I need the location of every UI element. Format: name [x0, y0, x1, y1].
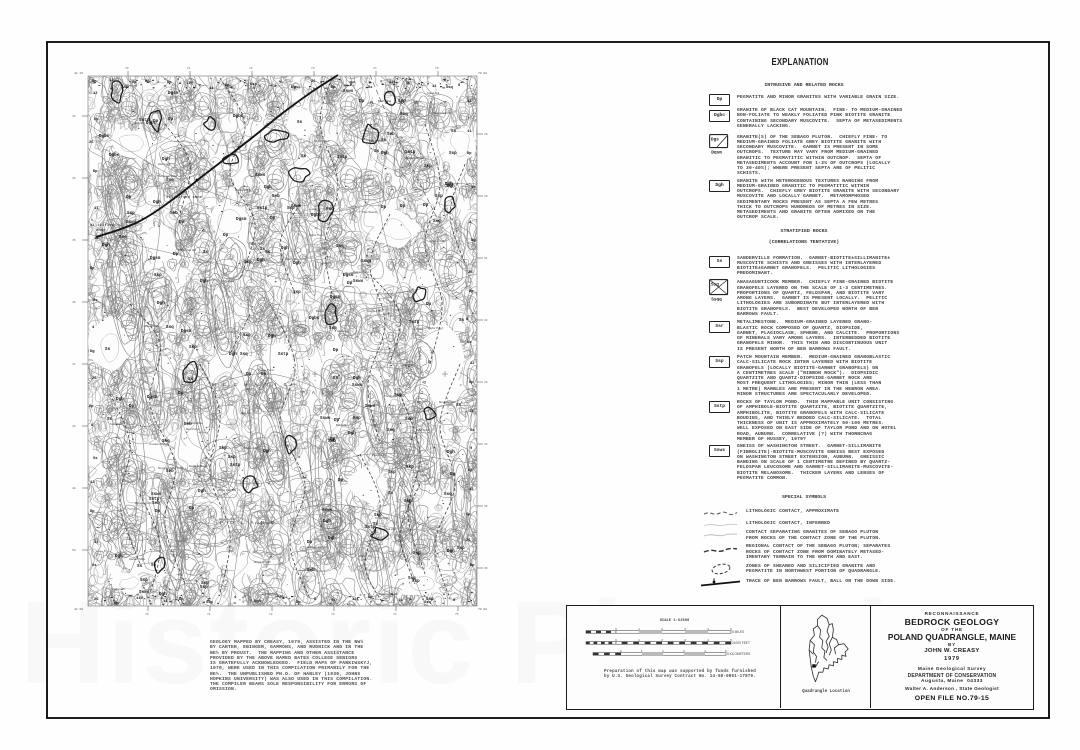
svg-text:26: 26 [311, 80, 316, 84]
svg-text:1: 1 [638, 638, 640, 642]
svg-text:Dp: Dp [331, 86, 336, 90]
svg-text:Dp: Dp [246, 372, 252, 377]
svg-text:Dp: Dp [155, 509, 161, 514]
svg-text:Dp: Dp [469, 290, 474, 294]
svg-text:Megquier Hill: Megquier Hill [310, 545, 327, 549]
svg-text:Dgh: Dgh [348, 431, 356, 436]
svg-text:Dgh: Dgh [447, 549, 455, 554]
svg-text:11: 11 [467, 130, 472, 134]
svg-text:Dgh: Dgh [263, 449, 271, 454]
svg-text:Bald Hill: Bald Hill [336, 423, 347, 427]
svg-text:Dp: Dp [381, 205, 387, 210]
svg-text:Dgh: Dgh [254, 599, 262, 604]
svg-text:Johnson Hill: Johnson Hill [429, 239, 445, 243]
svg-text:Ssp: Ssp [457, 546, 465, 551]
svg-text:Ss: Ss [459, 318, 465, 323]
svg-text:Dgsm: Dgsm [181, 329, 192, 334]
svg-text:Dp: Dp [468, 469, 473, 473]
svg-text:Dp: Dp [261, 372, 267, 377]
svg-text:75: 75 [435, 67, 439, 70]
svg-text:Dp: Dp [347, 281, 353, 286]
svg-text:Tripp Lake: Tripp Lake [221, 279, 235, 283]
svg-text:Megquier Hill: Megquier Hill [439, 400, 456, 404]
svg-text:Ss: Ss [374, 149, 380, 154]
svg-text:Dp: Dp [469, 381, 474, 385]
svg-text:Dgh: Dgh [447, 184, 455, 189]
svg-text:74: 74 [373, 67, 377, 70]
svg-text:Ss: Ss [93, 457, 98, 461]
svg-text:Meadow Brook: Meadow Brook [405, 156, 424, 160]
svg-text:Dgsm: Dgsm [236, 217, 247, 222]
svg-text:Ss: Ss [388, 491, 394, 496]
svg-text:49: 49 [72, 487, 76, 490]
svg-text:Dgh: Dgh [257, 258, 265, 263]
svg-text:Hardscrabble: Hardscrabble [186, 421, 203, 425]
svg-text:Ss: Ss [301, 154, 307, 159]
svg-text:Dgh: Dgh [200, 279, 208, 284]
svg-text:Ssp: Ssp [201, 581, 209, 586]
svg-text:Ss: Ss [151, 563, 157, 568]
svg-text:Pigeon Hill: Pigeon Hill [372, 453, 386, 457]
svg-text:Range Pond: Range Pond [316, 309, 332, 313]
svg-text:50: 50 [72, 549, 76, 552]
svg-text:Skp: Skp [189, 345, 197, 350]
svg-text:Dp: Dp [450, 472, 456, 477]
svg-text:Ssp: Ssp [243, 333, 251, 338]
svg-text:3: 3 [684, 638, 686, 642]
svg-text:P O L A N D: P O L A N D [220, 520, 278, 525]
svg-text:Ssws: Ssws [126, 220, 137, 225]
svg-text:30: 30 [484, 195, 488, 198]
svg-text:2: 2 [661, 627, 663, 631]
svg-text:Taylor Pond: Taylor Pond [428, 326, 443, 330]
svg-text:21000 FEET: 21000 FEET [732, 641, 750, 645]
svg-text:Skp: Skp [406, 465, 414, 470]
svg-text:Dp: Dp [129, 404, 135, 409]
svg-text:12: 12 [469, 488, 474, 492]
svg-text:Dgh: Dgh [447, 450, 455, 455]
svg-text:72: 72 [249, 67, 253, 70]
svg-text:Dp: Dp [400, 204, 406, 209]
svg-text:Ssp: Ssp [449, 151, 457, 156]
svg-text:Ss: Ss [467, 341, 472, 345]
svg-text:Ss: Ss [297, 120, 303, 125]
svg-text:Ss: Ss [331, 599, 336, 603]
svg-text:74: 74 [393, 613, 397, 616]
svg-text:Dp: Dp [406, 82, 411, 86]
svg-text:Sstp: Sstp [257, 206, 268, 211]
svg-text:Ssq: Ssq [166, 178, 174, 183]
svg-text:Dgbc: Dgbc [309, 316, 320, 321]
svg-text:0: 0 [615, 638, 617, 642]
svg-text:Ss: Ss [188, 377, 194, 382]
svg-text:26: 26 [92, 377, 97, 381]
svg-text:Hackett Mills: Hackett Mills [235, 188, 251, 192]
svg-text:Skp: Skp [404, 499, 412, 504]
svg-text:Dp: Dp [168, 117, 174, 122]
svg-text:Seb: Seb [170, 211, 178, 216]
svg-text:Dgsm: Dgsm [711, 150, 722, 154]
svg-text:Ssp: Ssp [405, 417, 413, 422]
svg-text:Ssws: Ssws [291, 204, 302, 209]
svg-text:Ssws: Ssws [322, 508, 333, 513]
svg-text:Taylor Pond: Taylor Pond [375, 516, 390, 520]
svg-text:70: 70 [145, 613, 149, 616]
svg-text:Ss: Ss [456, 403, 462, 408]
svg-text:Dgh: Dgh [264, 185, 272, 190]
svg-text:Ss: Ss [92, 564, 97, 568]
svg-text:73: 73 [331, 613, 335, 616]
svg-text:48: 48 [72, 425, 76, 428]
svg-text:Mud Pond: Mud Pond [186, 427, 199, 431]
svg-text:11: 11 [209, 87, 214, 91]
svg-text:Dgh: Dgh [153, 200, 161, 205]
svg-text:Sstp: Sstp [337, 155, 348, 160]
svg-text:26: 26 [89, 141, 94, 145]
svg-text:Ssq: Ssq [400, 112, 408, 117]
svg-text:Skp: Skp [424, 164, 432, 169]
svg-text:Sstp: Sstp [405, 150, 416, 155]
svg-text:Dgbc: Dgbc [99, 134, 110, 139]
svg-text:Dgh: Dgh [323, 519, 331, 524]
svg-text:Ssws: Ssws [151, 492, 162, 497]
svg-text:12: 12 [470, 362, 475, 366]
svg-text:31: 31 [484, 257, 488, 260]
svg-text:Hackett Mills: Hackett Mills [262, 592, 278, 596]
svg-text:Sp: Sp [94, 118, 99, 122]
svg-text:Dgh: Dgh [281, 246, 289, 251]
svg-text:Ssws: Ssws [255, 173, 266, 178]
svg-text:Dgh: Dgh [102, 243, 110, 248]
svg-text:45: 45 [72, 239, 76, 242]
svg-text:Ssp: Ssp [140, 578, 148, 583]
svg-text:Megquier Hill: Megquier Hill [158, 466, 175, 470]
svg-text:11: 11 [432, 85, 437, 89]
svg-text:Dp: Dp [467, 152, 472, 156]
svg-text:Skp: Skp [154, 273, 162, 278]
svg-text:Ss: Ss [471, 186, 476, 190]
svg-text:Seb: Seb [152, 501, 160, 506]
svg-text:Ssws: Ssws [361, 259, 372, 264]
svg-text:Sp: Sp [466, 513, 471, 517]
svg-text:Dp: Dp [114, 602, 119, 606]
svg-text:44 15: 44 15 [74, 72, 83, 75]
svg-text:26: 26 [94, 598, 99, 602]
svg-text:Ss: Ss [137, 564, 143, 569]
svg-text:Dp: Dp [90, 510, 95, 514]
svg-text:Ssq: Ssq [424, 601, 432, 605]
svg-text:34: 34 [484, 443, 488, 446]
svg-text:White Oak Hill: White Oak Hill [218, 488, 236, 492]
svg-text:35: 35 [484, 505, 488, 508]
svg-text:47: 47 [72, 363, 76, 366]
svg-text:Dp: Dp [173, 252, 179, 257]
svg-text:Sstp: Sstp [409, 320, 420, 325]
svg-text:Ss: Ss [105, 347, 111, 352]
svg-text:11: 11 [94, 237, 99, 241]
svg-text:Dgbc: Dgbc [109, 153, 120, 158]
svg-text:Thompson Lake: Thompson Lake [384, 394, 405, 398]
svg-text:Dg: Dg [90, 350, 95, 354]
svg-text:Ss: Ss [368, 86, 373, 90]
svg-text:Dp: Dp [359, 99, 365, 104]
svg-text:44: 44 [72, 177, 76, 180]
svg-text:4: 4 [704, 649, 706, 653]
svg-text:Dp: Dp [90, 267, 95, 271]
svg-text:Ssq: Ssq [444, 492, 452, 497]
svg-text:F A L L S: F A L L S [302, 390, 347, 395]
svg-text:Dgh: Dgh [353, 376, 361, 381]
svg-text:Sstp: Sstp [278, 352, 289, 357]
svg-text:Dp: Dp [93, 170, 98, 174]
svg-text:Ss: Ss [203, 250, 209, 255]
svg-text:Crooked River: Crooked River [149, 442, 167, 446]
svg-text:Dgsm: Dgsm [168, 91, 179, 96]
svg-text:Harris Hill: Harris Hill [158, 162, 170, 166]
svg-text:Taylor Pond: Taylor Pond [314, 139, 329, 143]
svg-text:Taylor Pond: Taylor Pond [309, 233, 324, 237]
svg-text:zone: zone [96, 229, 106, 233]
svg-text:11: 11 [398, 599, 403, 603]
svg-text:Megquier Hill: Megquier Hill [254, 560, 271, 564]
svg-text:Range Pond: Range Pond [353, 270, 369, 274]
svg-text:Ss: Ss [93, 299, 98, 303]
svg-text:Dp: Dp [89, 405, 94, 409]
svg-text:Seb: Seb [387, 132, 395, 137]
svg-text:Dp: Dp [179, 220, 185, 225]
svg-text:Ssq: Ssq [387, 428, 395, 433]
svg-text:Dgh: Dgh [293, 261, 301, 266]
svg-text:3: 3 [684, 627, 686, 631]
svg-text:11: 11 [469, 410, 474, 414]
svg-text:Ssws: Ssws [352, 383, 363, 388]
svg-text:Empire: Empire [414, 327, 423, 331]
svg-text:70 00: 70 00 [478, 72, 487, 75]
svg-text:Dp: Dp [423, 203, 429, 208]
svg-text:Dgsm: Dgsm [147, 395, 158, 400]
svg-text:Pine Woods: Pine Woods [362, 210, 378, 214]
svg-text:33: 33 [484, 381, 488, 384]
svg-text:46: 46 [72, 301, 76, 304]
svg-text:32: 32 [484, 319, 488, 322]
svg-text:11: 11 [163, 600, 168, 604]
svg-text:Ssq: Ssq [446, 86, 454, 90]
svg-text:Dp: Dp [167, 81, 172, 85]
svg-text:Spear Hill: Spear Hill [110, 422, 123, 426]
svg-text:White Oak Hill: White Oak Hill [178, 248, 196, 252]
svg-text:Dgh: Dgh [328, 536, 336, 541]
svg-text:Empire: Empire [135, 121, 144, 125]
svg-text:Skp: Skp [244, 260, 252, 265]
svg-text:Dgh: Dgh [116, 397, 124, 402]
svg-text:Ss: Ss [265, 250, 271, 255]
svg-text:Dgs: Dgs [711, 137, 719, 142]
svg-text:Ssp: Ssp [250, 83, 258, 87]
svg-text:75: 75 [455, 613, 459, 616]
svg-text:Ssq: Ssq [119, 235, 127, 240]
svg-text:Ssp: Ssp [353, 416, 361, 421]
svg-text:Range Pond: Range Pond [367, 309, 383, 313]
svg-text:Dp: Dp [189, 506, 195, 511]
svg-text:Oak Hill: Oak Hill [385, 527, 395, 531]
svg-text:Dp: Dp [270, 216, 276, 221]
svg-text:Dp: Dp [333, 348, 339, 353]
svg-text:Hackett Mills: Hackett Mills [129, 557, 145, 561]
svg-text:0: 0 [620, 649, 622, 653]
svg-text:Ssp: Ssp [413, 551, 421, 556]
svg-text:0: 0 [615, 627, 617, 631]
svg-text:43: 43 [72, 115, 76, 118]
svg-text:Dp: Dp [153, 119, 159, 124]
svg-text:Dgh: Dgh [268, 334, 276, 339]
svg-text:Ssws: Ssws [139, 590, 150, 595]
svg-text:1: 1 [638, 627, 640, 631]
svg-text:Ssws: Ssws [365, 404, 376, 409]
svg-text:Spear Hill: Spear Hill [427, 91, 440, 95]
svg-text:Dp: Dp [426, 302, 432, 307]
svg-text:Johnson Hill: Johnson Hill [143, 324, 159, 328]
svg-text:4: 4 [707, 638, 709, 642]
svg-text:Ssq: Ssq [408, 576, 416, 581]
svg-text:Ricker Hill: Ricker Hill [359, 554, 372, 558]
svg-text:Minot: Minot [371, 530, 378, 534]
svg-text:Dp: Dp [225, 84, 230, 88]
svg-text:Ssqg: Ssqg [711, 297, 722, 301]
svg-text:Dp: Dp [338, 478, 344, 483]
svg-text:Shaker Hill: Shaker Hill [111, 587, 125, 591]
svg-text:Dgh: Dgh [115, 554, 123, 559]
svg-text:Ssws: Ssws [320, 416, 331, 421]
svg-text:silicified: silicified [90, 223, 115, 228]
svg-text:Seb: Seb [272, 194, 280, 199]
svg-text:70: 70 [125, 67, 129, 70]
svg-text:Seb: Seb [307, 568, 315, 573]
svg-text:Dp: Dp [368, 596, 373, 600]
svg-text:Dgsm: Dgsm [150, 256, 161, 261]
svg-text:Ssq: Ssq [166, 325, 174, 330]
svg-text:72: 72 [269, 613, 273, 616]
svg-text:29: 29 [484, 133, 488, 136]
svg-text:Harris Hill: Harris Hill [337, 329, 349, 333]
svg-text:Ssp: Ssp [388, 470, 396, 475]
svg-text:12: 12 [90, 481, 95, 485]
svg-text:Meadow Brook: Meadow Brook [189, 464, 208, 468]
svg-text:Ssp: Ssp [293, 290, 301, 295]
svg-text:M E C H A N I C: M E C H A N I C [212, 382, 290, 387]
svg-text:Meadow Brook: Meadow Brook [379, 592, 398, 596]
svg-text:Ssp: Ssp [329, 326, 337, 331]
svg-text:Dp: Dp [92, 80, 97, 84]
svg-text:Ssq: Ssq [326, 207, 334, 212]
svg-text:4: 4 [707, 627, 709, 631]
svg-text:Shaker Hill: Shaker Hill [244, 446, 258, 450]
svg-text:Ssp: Ssp [228, 455, 236, 460]
svg-text:Dgh: Dgh [381, 151, 389, 156]
svg-text:Seb: Seb [328, 439, 336, 444]
svg-text:Ssq: Ssq [336, 244, 344, 249]
svg-text:Dg: Dg [471, 239, 476, 243]
svg-text:Sp: Sp [132, 81, 137, 85]
svg-text:Dp: Dp [470, 564, 475, 568]
svg-text:Sstp: Sstp [230, 463, 241, 468]
svg-text:Dgbc: Dgbc [233, 114, 244, 119]
svg-text:Ssq: Ssq [240, 352, 248, 357]
svg-text:Dp: Dp [126, 195, 132, 200]
svg-text:12: 12 [109, 79, 114, 83]
svg-text:71: 71 [207, 613, 211, 616]
svg-text:121: 121 [389, 81, 397, 85]
svg-text:Dp: Dp [223, 233, 229, 238]
svg-text:11: 11 [467, 100, 472, 104]
svg-text:Harris Hill: Harris Hill [434, 111, 446, 115]
svg-text:2: 2 [662, 649, 664, 653]
svg-text:119: 119 [186, 82, 194, 86]
svg-text:Megquier Hill: Megquier Hill [135, 501, 152, 505]
svg-text:3: 3 [683, 649, 685, 653]
svg-text:Ssp: Ssp [206, 601, 214, 605]
svg-text:Dgh: Dgh [229, 352, 237, 357]
svg-text:11: 11 [94, 541, 99, 545]
svg-text:Ssws: Ssws [353, 279, 364, 284]
svg-text:71: 71 [187, 67, 191, 70]
svg-text:26: 26 [466, 539, 471, 543]
svg-text:Dp: Dp [179, 598, 184, 602]
svg-text:Dp: Dp [178, 391, 184, 396]
svg-text:36: 36 [484, 567, 488, 570]
svg-text:70 00: 70 00 [478, 608, 487, 611]
svg-text:Ss: Ss [470, 429, 475, 433]
svg-text:11: 11 [94, 207, 99, 211]
svg-text:Dgh: Dgh [157, 301, 165, 306]
svg-text:44 00: 44 00 [74, 608, 83, 611]
svg-text:Bald Hill: Bald Hill [286, 257, 297, 261]
svg-text:1: 1 [641, 649, 643, 653]
svg-text:12: 12 [93, 92, 98, 96]
svg-text:Ssq: Ssq [711, 282, 719, 287]
svg-text:Ss: Ss [451, 129, 457, 134]
svg-text:Ssp: Ssp [435, 194, 443, 199]
svg-text:Ssp: Ssp [127, 211, 135, 216]
svg-text:119: 119 [136, 597, 144, 601]
svg-text:silicified zone: silicified zone [166, 195, 203, 200]
svg-text:Ss: Ss [333, 376, 339, 381]
svg-text:2: 2 [661, 638, 663, 642]
svg-text:5 KILOMETERS: 5 KILOMETERS [727, 652, 750, 656]
svg-text:N O R W A Y: N O R W A Y [370, 100, 451, 105]
svg-text:73: 73 [311, 67, 315, 70]
svg-text:Bear Pond: Bear Pond [416, 428, 430, 432]
svg-text:26: 26 [468, 271, 473, 275]
svg-text:Ssws: Ssws [343, 89, 354, 94]
svg-text:Ssq: Ssq [433, 219, 441, 224]
svg-text:Skp: Skp [219, 446, 227, 451]
svg-text:Dgh: Dgh [198, 489, 206, 494]
svg-text:Dgbc: Dgbc [311, 213, 322, 218]
svg-text:5 MILES: 5 MILES [732, 630, 744, 634]
svg-text:Range Pond: Range Pond [258, 368, 274, 372]
svg-text:Dgsm: Dgsm [330, 295, 341, 300]
